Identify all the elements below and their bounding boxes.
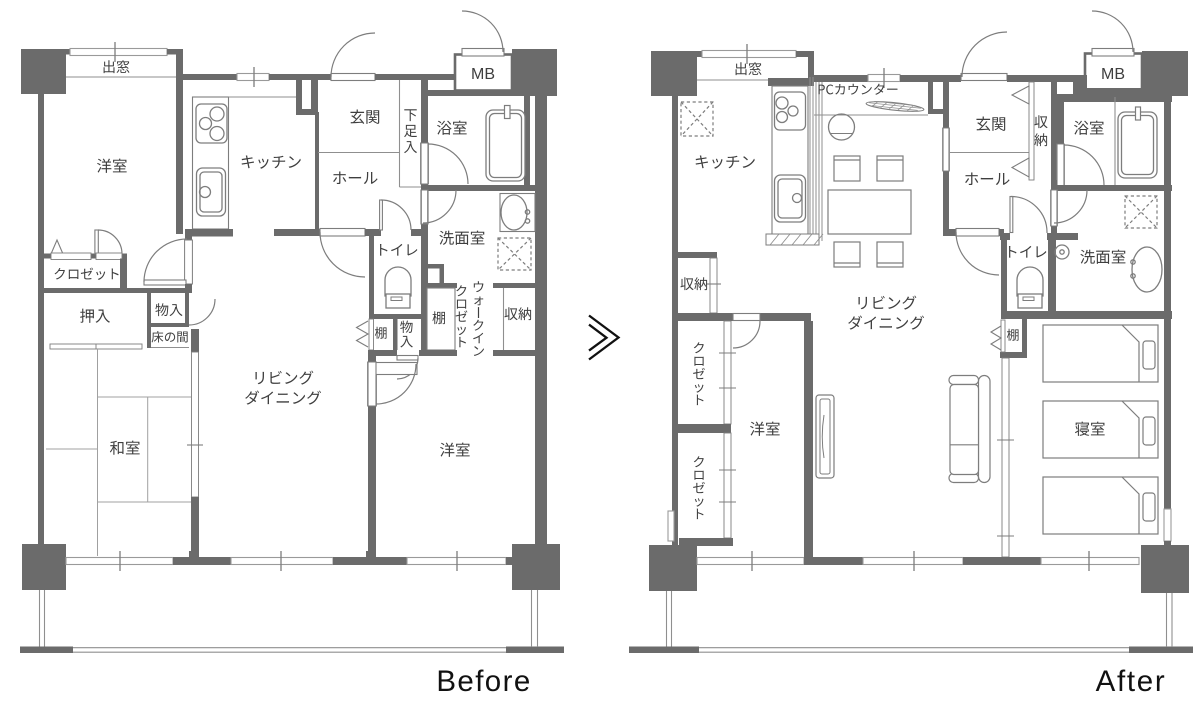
- svg-text:MB: MB: [471, 66, 495, 83]
- svg-text:MB: MB: [1101, 66, 1125, 83]
- svg-text:After: After: [1096, 665, 1167, 698]
- svg-text:Before: Before: [436, 665, 531, 698]
